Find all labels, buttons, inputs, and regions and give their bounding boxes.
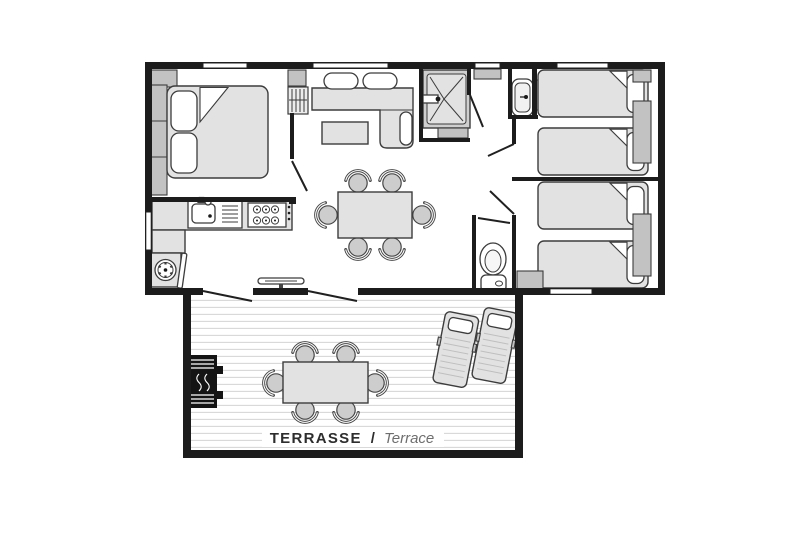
kitchen-sink-icon: [188, 198, 242, 229]
stove-icon: [248, 203, 290, 227]
sofa-cushion: [363, 73, 397, 89]
window-icon: [313, 63, 388, 68]
bedside-cabinet: [633, 214, 651, 276]
terrace: TERRASSE / Terrace: [183, 295, 523, 458]
shower-shelf: [438, 128, 468, 138]
main-building: [145, 62, 665, 301]
terrace-label-separator: /: [371, 430, 376, 447]
window-icon: [550, 289, 592, 294]
dining-table-icon: [338, 192, 412, 238]
terrace-table: [283, 362, 368, 403]
shower-room: [423, 70, 470, 138]
single-bed-icon: [538, 182, 648, 229]
wall-right: [658, 62, 665, 295]
single-bed-icon: [538, 70, 648, 117]
window-icon: [146, 212, 151, 250]
cabinet: [288, 70, 306, 86]
pillow: [171, 91, 197, 131]
bedside-shelf: [151, 70, 177, 87]
window-icon: [475, 63, 500, 68]
shower-icon: [423, 70, 470, 128]
pillow: [171, 133, 197, 173]
patio-door-opening: [308, 288, 358, 295]
washbasin-icon: [512, 79, 533, 116]
sofa-cushion: [324, 73, 358, 89]
wardrobe-icon: [151, 85, 167, 195]
sofa-cushion: [400, 112, 412, 145]
hanging-wardrobe-icon: [288, 87, 308, 114]
wc-room: [480, 243, 506, 292]
wall-left: [145, 62, 152, 295]
kitchen-counter-return: [152, 230, 185, 253]
terrace-wall-bottom: [183, 450, 523, 458]
window-sill: [474, 69, 501, 79]
double-bed-icon: [167, 86, 268, 178]
terrace-wall-left: [183, 295, 191, 458]
single-bed-icon: [538, 128, 648, 175]
floor-plan: TERRASSE / Terrace: [0, 0, 800, 533]
laundry-closet: [150, 253, 187, 288]
corner-shelf: [633, 70, 651, 82]
toilet-icon: [480, 243, 506, 292]
washing-machine-icon: [155, 260, 176, 281]
shower-head: [436, 97, 441, 102]
bedside-cabinet: [633, 101, 651, 163]
terrace-wall-right: [515, 295, 523, 458]
window-icon: [203, 63, 247, 68]
single-bed-icon: [538, 241, 648, 288]
terrace-label-fr: TERRASSE: [270, 430, 362, 447]
coffee-table-icon: [322, 122, 368, 144]
terrace-label-en: Terrace: [384, 430, 434, 447]
window-icon: [557, 63, 608, 68]
patio-door-opening: [203, 288, 253, 295]
terrace-label: TERRASSE / Terrace: [270, 430, 435, 447]
floor-plan-page: TERRASSE / Terrace: [0, 0, 800, 533]
